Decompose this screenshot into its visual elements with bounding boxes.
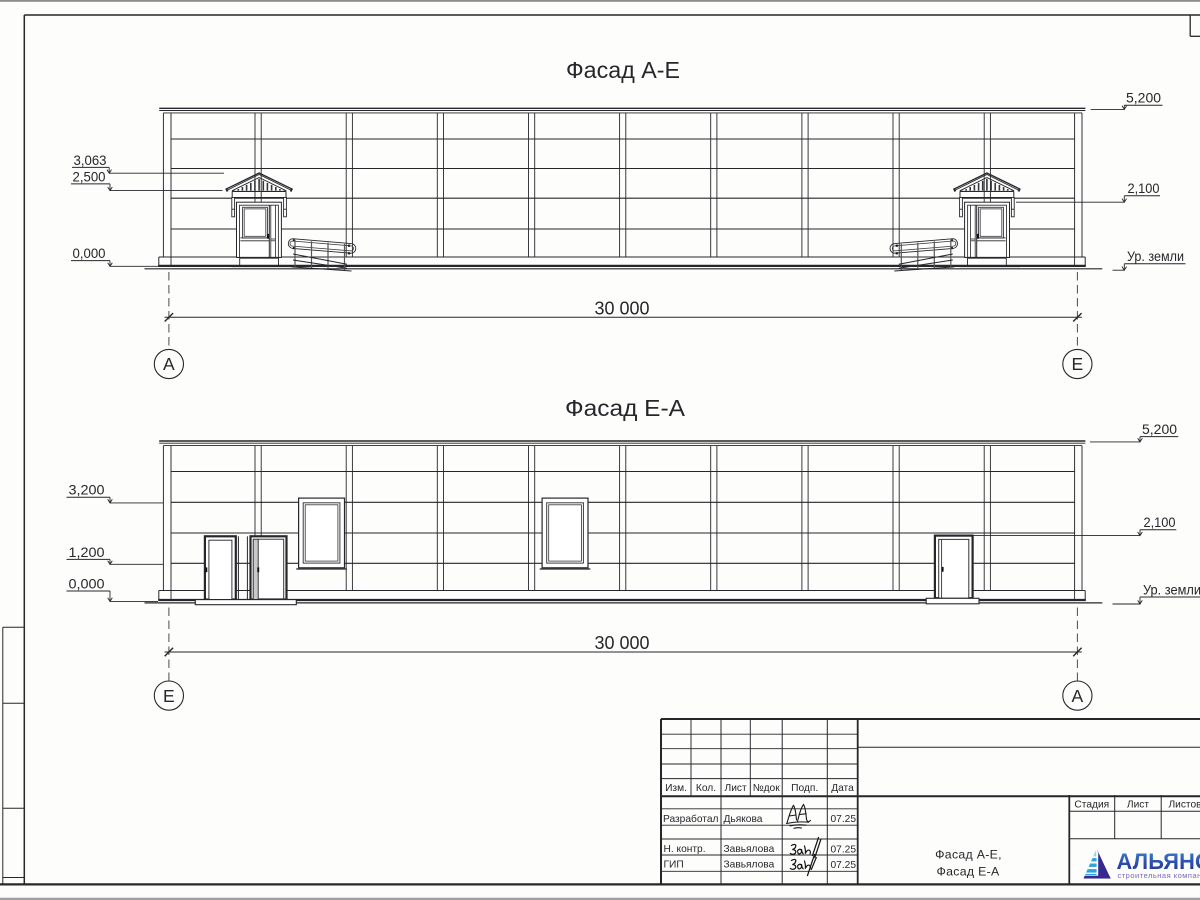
svg-text:3,063: 3,063	[74, 153, 107, 168]
svg-text:Кол.: Кол.	[696, 783, 716, 794]
svg-text:Е: Е	[163, 686, 175, 706]
svg-text:Фасад Е-А: Фасад Е-А	[565, 395, 685, 421]
svg-text:07.25: 07.25	[831, 844, 857, 855]
svg-text:2,100: 2,100	[1128, 181, 1160, 196]
svg-text:Подп.: Подп.	[791, 783, 818, 794]
svg-text:Фасад А-Е: Фасад А-Е	[566, 57, 680, 83]
svg-text:Дата: Дата	[831, 783, 854, 794]
svg-text:ГИП: ГИП	[664, 859, 684, 870]
svg-text:0,000: 0,000	[73, 246, 106, 261]
svg-text:Завьялова: Завьялова	[724, 844, 775, 855]
svg-text:Разработал: Разработал	[663, 813, 719, 825]
svg-text:Лист: Лист	[725, 783, 747, 794]
svg-text:3,200: 3,200	[69, 483, 105, 498]
svg-text:Ур. земли: Ур. земли	[1127, 249, 1184, 265]
svg-text:строительная компания: строительная компания	[1118, 871, 1200, 880]
svg-text:Фасад А-Е,: Фасад А-Е,	[935, 848, 1002, 862]
svg-text:Дьякова: Дьякова	[724, 814, 763, 825]
svg-text:30 000: 30 000	[595, 298, 650, 319]
svg-text:№док: №док	[753, 783, 781, 794]
svg-text:Лист: Лист	[1127, 799, 1149, 810]
svg-text:Е: Е	[1072, 354, 1084, 374]
svg-text:2,500: 2,500	[73, 169, 106, 184]
svg-text:07.25: 07.25	[831, 814, 857, 825]
svg-text:Ур. земли: Ур. земли	[1143, 582, 1200, 598]
svg-text:Н. контр.: Н. контр.	[664, 844, 706, 855]
svg-text:А: А	[163, 354, 175, 374]
svg-text:5,200: 5,200	[1142, 422, 1177, 437]
svg-text:5,200: 5,200	[1126, 91, 1161, 106]
svg-text:Фасад Е-А: Фасад Е-А	[937, 865, 1000, 879]
svg-text:07.25: 07.25	[831, 860, 857, 871]
svg-text:1,200: 1,200	[69, 545, 105, 560]
svg-text:2,100: 2,100	[1144, 515, 1176, 530]
svg-text:Стадия: Стадия	[1074, 799, 1109, 810]
svg-text:А: А	[1072, 686, 1084, 706]
svg-text:30 000: 30 000	[595, 632, 650, 653]
svg-text:Листов: Листов	[1168, 799, 1200, 810]
svg-text:Завьялова: Завьялова	[724, 859, 775, 870]
svg-text:0,000: 0,000	[69, 576, 105, 591]
svg-text:Изм.: Изм.	[665, 783, 687, 794]
